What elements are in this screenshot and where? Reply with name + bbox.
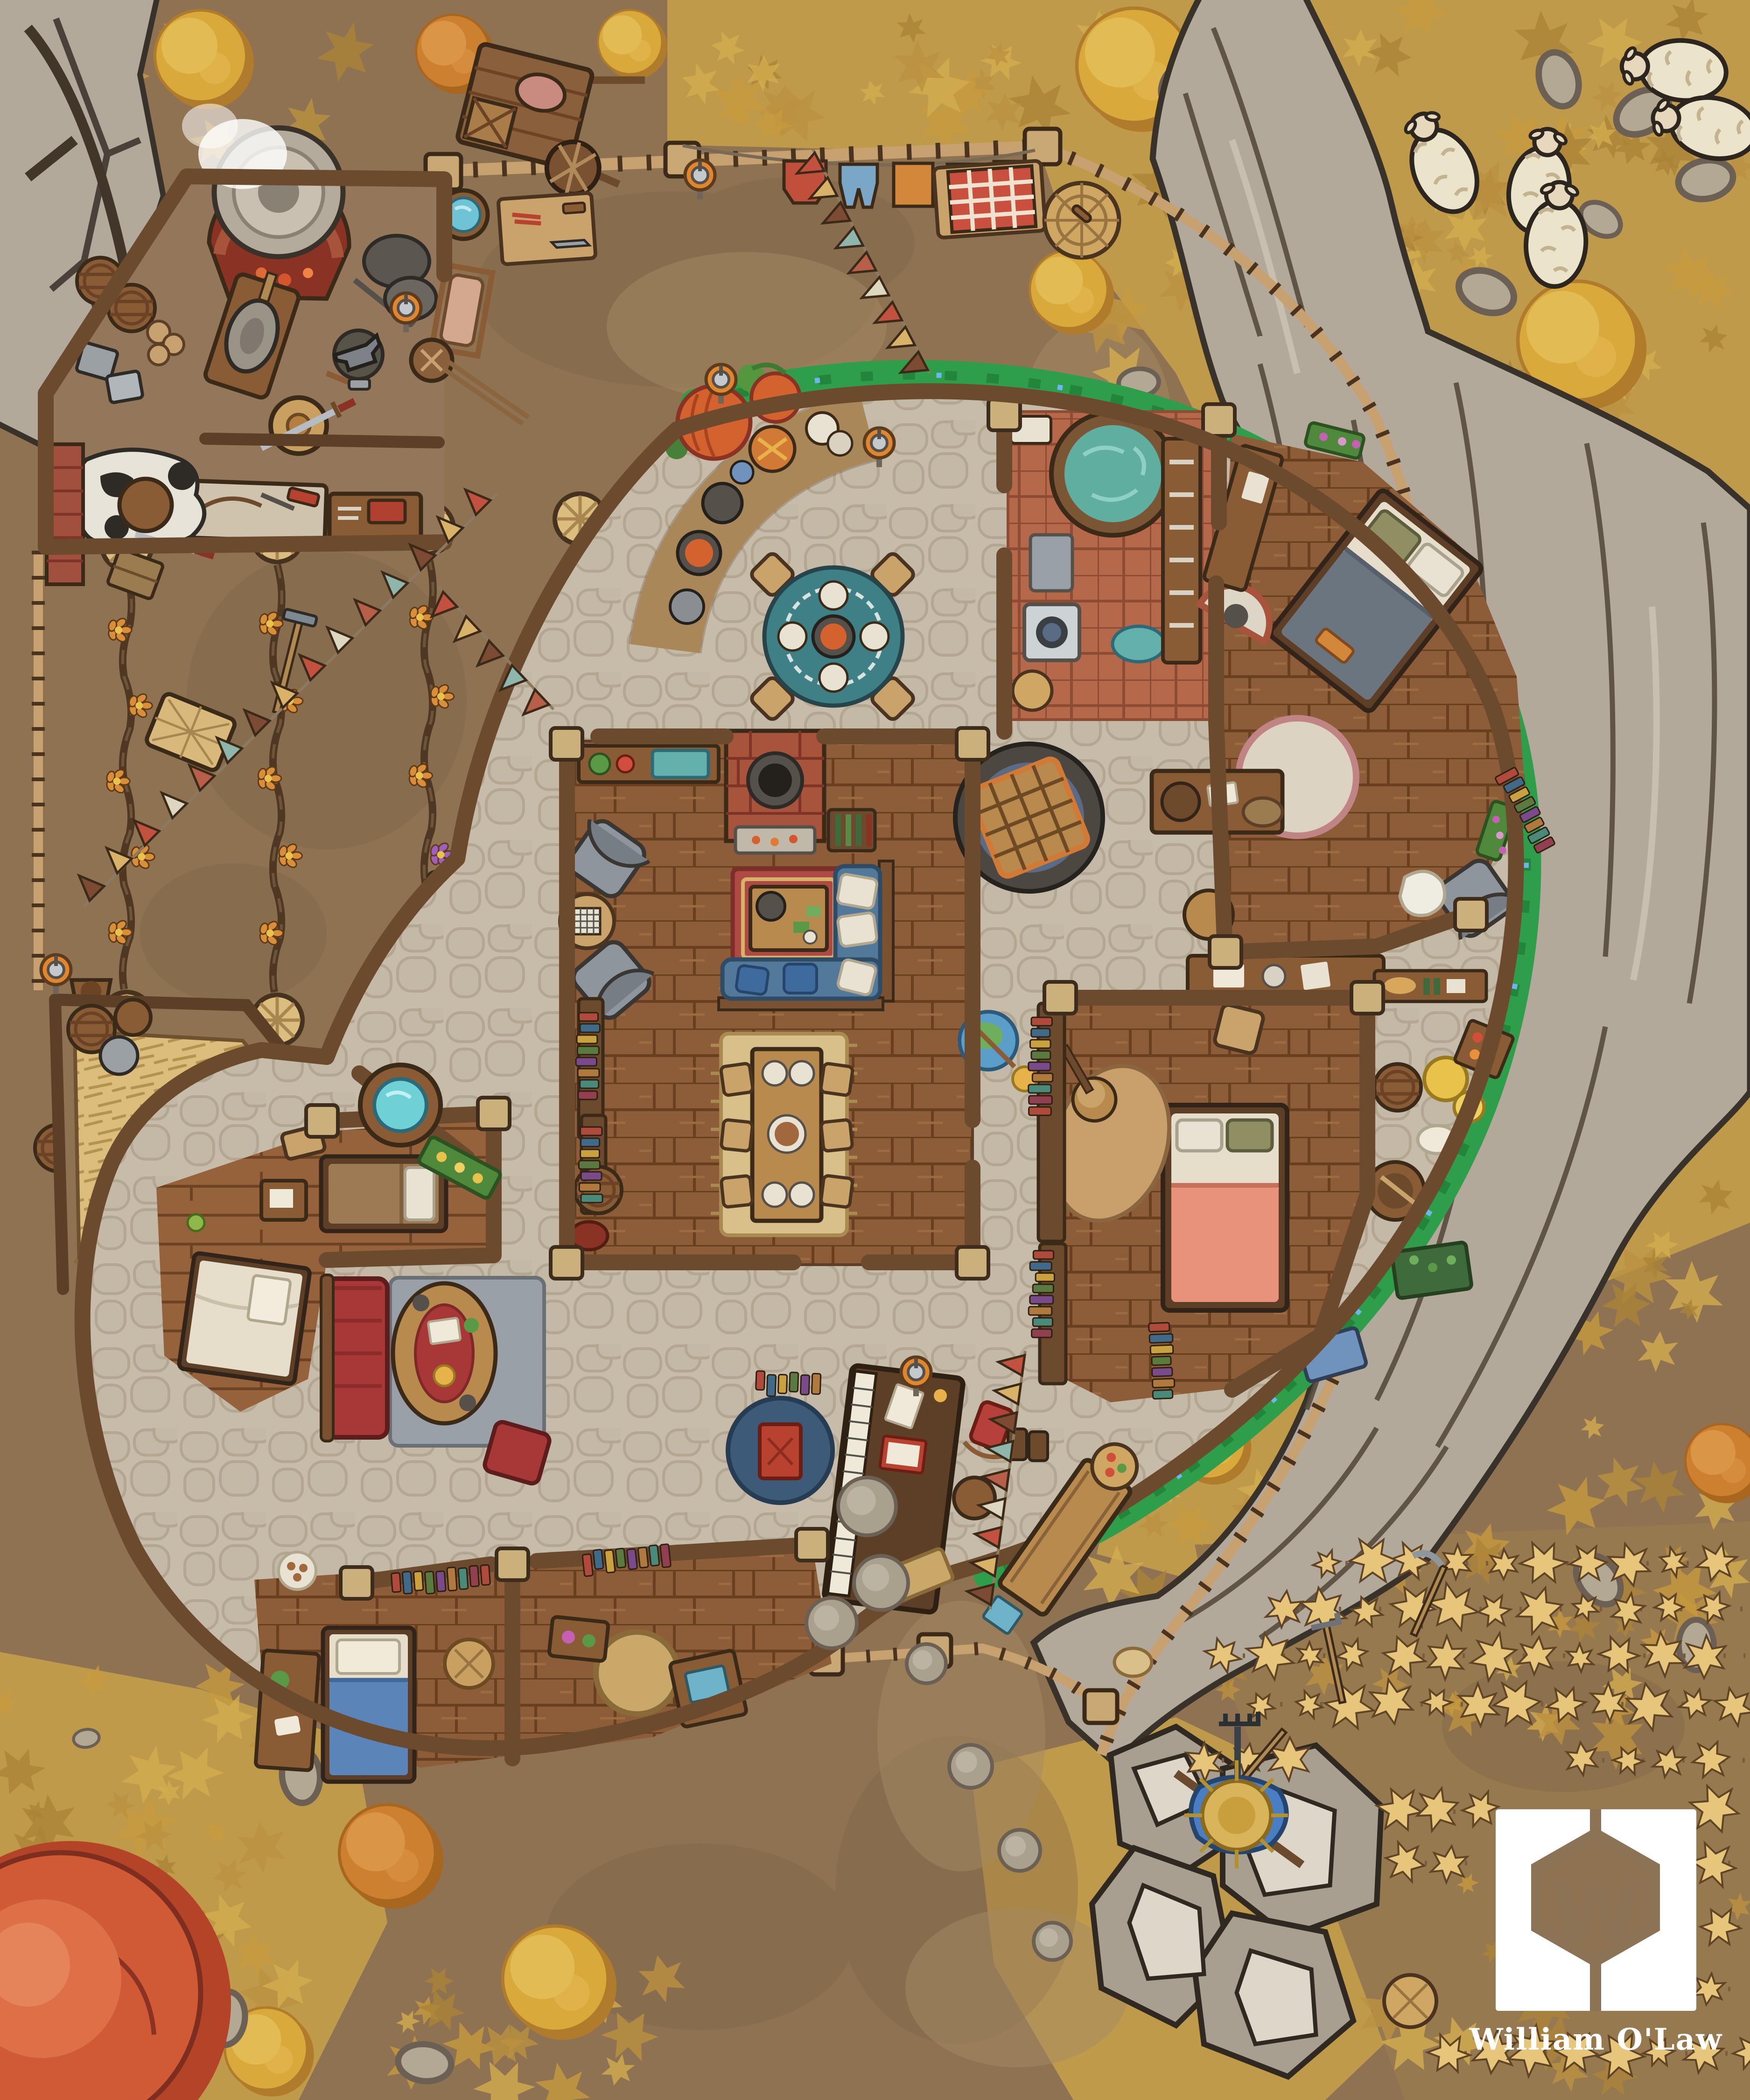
sink — [1113, 626, 1165, 662]
wash-basin — [652, 750, 708, 777]
piano-stool — [954, 1477, 995, 1519]
oval-table — [393, 1283, 496, 1423]
kitchen-table — [749, 552, 916, 722]
fireplace — [726, 731, 824, 853]
red-couch — [321, 1275, 387, 1441]
bath-mat — [1030, 535, 1072, 591]
logo-letter: W — [1551, 1867, 1640, 1960]
dining-nook — [711, 1034, 857, 1235]
artist-credit: William O'Law — [1469, 2022, 1722, 2057]
rug-and-coffee-table — [733, 869, 845, 968]
round-basket-lid — [1044, 183, 1119, 258]
bed-blue — [323, 1628, 414, 1782]
pan — [703, 483, 742, 523]
bed-white — [178, 1253, 310, 1384]
grain-sack — [1114, 1648, 1152, 1676]
porthole-door — [360, 1065, 441, 1145]
workbench — [498, 193, 595, 265]
toy-chest — [549, 1617, 609, 1661]
dropped-cloth — [1400, 871, 1445, 916]
bed-study — [1163, 1105, 1287, 1310]
bath-shelf — [1163, 439, 1200, 663]
battle-map: W William O'Law — [0, 0, 1750, 2100]
picnic-table — [934, 161, 1046, 238]
laundry-machine — [1024, 604, 1079, 660]
round-rug — [596, 1632, 678, 1714]
desk-chair — [1213, 1003, 1264, 1054]
